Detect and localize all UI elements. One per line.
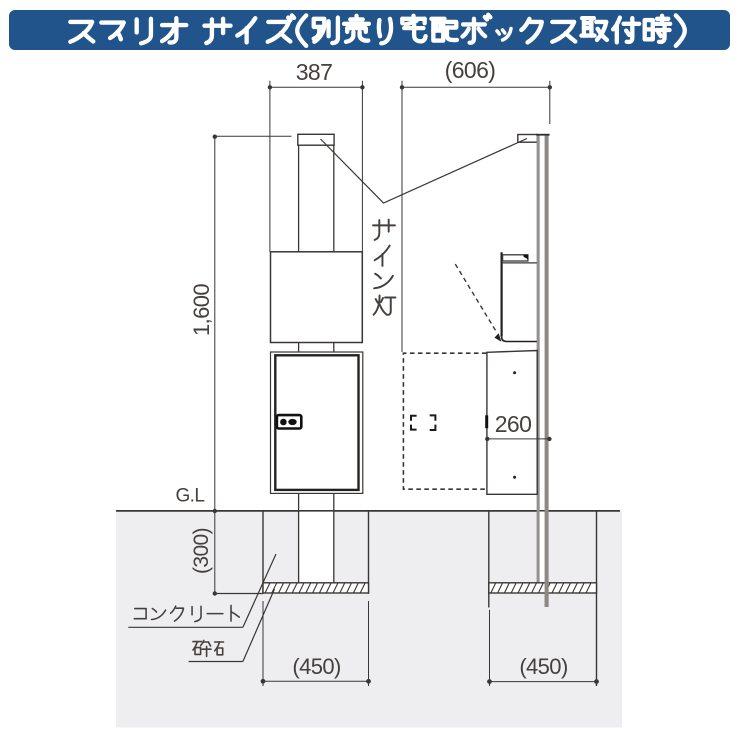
svg-text:1,600: 1,600 [189,284,214,336]
svg-text:G.L: G.L [176,486,205,507]
svg-text:(450): (450) [292,654,340,679]
svg-text:(300): (300) [190,528,213,574]
svg-text:260: 260 [495,411,532,437]
svg-text:(606): (606) [445,57,496,83]
svg-text:387: 387 [296,59,333,85]
svg-text:(450): (450) [519,654,567,679]
